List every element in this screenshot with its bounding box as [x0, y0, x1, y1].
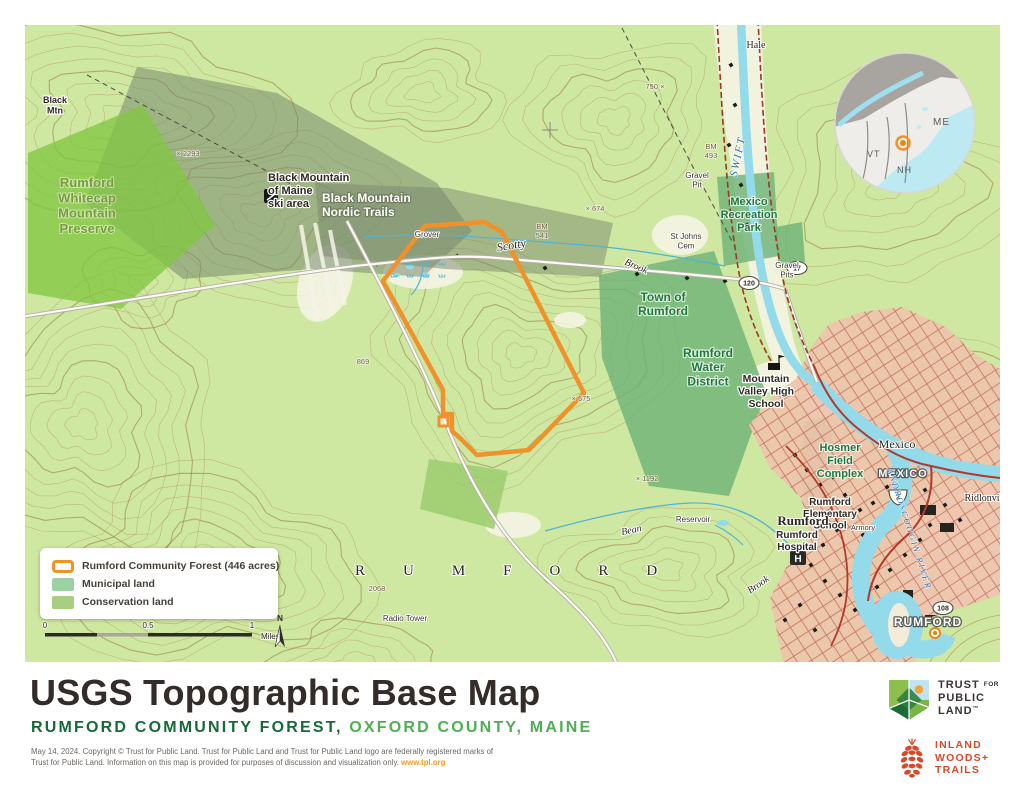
legend-swatch-0: [52, 560, 74, 573]
map-label-ridlonville: Ridlonville: [965, 493, 1001, 504]
map-label-rumford-spaced: RUMFORD: [355, 563, 695, 579]
scale-label-end: 1: [250, 621, 255, 630]
map-label-town-of-rumford: Town ofRumford: [638, 290, 688, 318]
map-label-hale: Hale: [747, 40, 766, 51]
map-label-elev-2068: 2068: [369, 584, 386, 593]
map-label-mexico-serif: Mexico: [879, 437, 916, 451]
tpl-logo: TRUST FOR PUBLIC LAND™: [888, 679, 999, 721]
legend: Rumford Community Forest (446 acres)Muni…: [40, 548, 278, 619]
map-label-whitecap-preserve: RumfordWhitecapMountainPreserve: [58, 175, 116, 236]
map-label-bm-493: BM493: [705, 142, 718, 160]
marker-icon: [930, 628, 940, 638]
page-subtitle: RUMFORD COMMUNITY FOREST, OXFORD COUNTY,…: [31, 719, 592, 737]
svg-text:H: H: [794, 554, 801, 565]
subtitle-region: OXFORD COUNTY, MAINE: [343, 719, 593, 736]
subtitle-forest: RUMFORD COMMUNITY FOREST,: [31, 719, 343, 736]
pinecone-icon: [896, 736, 928, 780]
legend-item-1: Municipal land: [52, 575, 266, 593]
iwt-logo-text: INLAND WOODS+ TRAILS: [935, 739, 989, 777]
legend-label-2: Conservation land: [82, 596, 174, 608]
scale-label-mid: 0.5: [142, 621, 154, 630]
legend-swatch-1: [52, 578, 74, 591]
map-label-elev-1192: × 1192: [636, 474, 659, 483]
hospital-icon: H: [790, 551, 806, 565]
map-label-elev-869: 869: [357, 357, 370, 366]
map-label-reservoir: Reservoir: [676, 515, 711, 524]
map-label-armory: Armory: [851, 523, 875, 532]
inset-label-vt: VT: [867, 149, 881, 159]
page: { "colors": { "map_green":"#cfe8a1","con…: [0, 0, 1024, 791]
map-label-radio-tower: Radio Tower: [383, 614, 428, 623]
route-shield-108: 108: [933, 602, 953, 615]
svg-text:120: 120: [743, 281, 755, 288]
disclaimer-line-1: May 14, 2024. Copyright © Trust for Publ…: [31, 747, 501, 758]
boundary-notch: [439, 417, 448, 426]
inset-label-nh: NH: [897, 165, 912, 175]
legend-item-0: Rumford Community Forest (446 acres): [52, 557, 266, 575]
inset-label-me: ME: [933, 117, 950, 128]
map-label-bm-541: BM541: [536, 222, 549, 240]
tpl-logo-mark: [888, 679, 930, 721]
north-label: N: [277, 614, 283, 623]
map-label-elev-674: × 674: [586, 204, 605, 213]
map-label-elev-2293: × 2293: [176, 149, 199, 158]
map-label-elev-750: 750 ×: [646, 82, 665, 91]
legend-label-1: Municipal land: [82, 578, 155, 590]
map-label-elev-675: × 675: [572, 394, 591, 403]
disclaimer: May 14, 2024. Copyright © Trust for Publ…: [31, 747, 501, 769]
disclaimer-line-2: Trust for Public Land. Information on th…: [31, 758, 501, 769]
tpl-link[interactable]: www.tpl.org: [401, 758, 445, 767]
locator-inset-map: MEVTNH: [833, 51, 977, 195]
tpl-logo-text: TRUST FOR PUBLIC LAND™: [938, 679, 999, 718]
inland-woods-trails-logo: INLAND WOODS+ TRAILS: [896, 736, 989, 780]
map-label-rumford-serif: Rumford: [777, 513, 829, 528]
map-label-rumford-town: RUMFORD: [894, 615, 962, 629]
map-label-grover: Grover: [415, 230, 440, 239]
page-title: USGS Topographic Base Map: [30, 672, 540, 714]
legend-label-0: Rumford Community Forest (446 acres): [82, 560, 279, 572]
map-label-rumford-hospital: RumfordHospital: [776, 530, 818, 553]
municipal-polygon-recpark-east: [776, 222, 805, 265]
location-marker-dot: [900, 140, 906, 146]
scale-label-start: 0: [43, 621, 48, 630]
legend-item-2: Conservation land: [52, 593, 266, 611]
route-shield-120: 120: [739, 277, 759, 290]
legend-swatch-2: [52, 596, 74, 609]
svg-text:108: 108: [937, 606, 949, 613]
